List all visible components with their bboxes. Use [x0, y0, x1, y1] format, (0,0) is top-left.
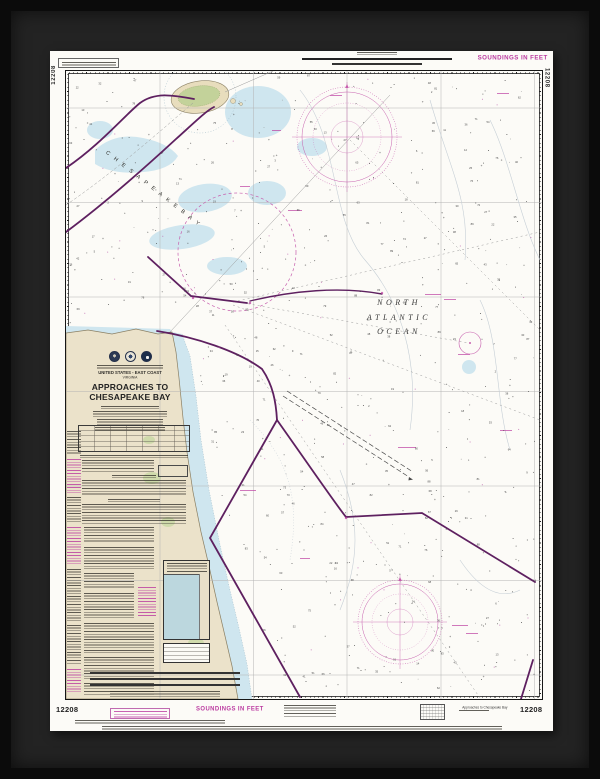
- svg-text:68: 68: [428, 580, 431, 584]
- svg-text:27: 27: [484, 210, 487, 214]
- svg-text:19: 19: [213, 200, 216, 204]
- svg-text:55: 55: [310, 120, 313, 124]
- note-heading: [108, 499, 160, 502]
- chart-paper: 3723897533631141732827589193127943474751…: [50, 51, 553, 731]
- svg-text:81: 81: [477, 477, 480, 481]
- svg-text:83: 83: [245, 546, 248, 550]
- svg-text:82: 82: [333, 372, 336, 376]
- svg-text:27: 27: [344, 138, 347, 142]
- svg-text:30: 30: [456, 204, 459, 208]
- scale-bar-main: [302, 58, 452, 60]
- svg-text:31: 31: [128, 280, 131, 284]
- note-paragraph: [84, 593, 134, 619]
- soundings-note-top: SOUNDINGS IN FEET: [478, 55, 548, 61]
- svg-text:30: 30: [521, 333, 524, 337]
- svg-text:26: 26: [211, 160, 214, 164]
- svg-text:34: 34: [210, 349, 213, 353]
- svg-text:76: 76: [69, 263, 72, 267]
- note-paragraph: [110, 691, 220, 697]
- svg-text:11: 11: [261, 447, 264, 451]
- svg-text:70: 70: [256, 418, 259, 422]
- svg-text:37: 37: [209, 309, 212, 313]
- svg-text:9: 9: [526, 470, 528, 474]
- corrections-note: [75, 720, 225, 725]
- inset-table-box: [163, 643, 210, 663]
- page: { "chart": { "number": "12208", "soundin…: [0, 0, 600, 779]
- svg-text:21: 21: [242, 483, 245, 487]
- margin-note: [67, 497, 81, 523]
- chart-title-line2: CHESAPEAKE BAY: [70, 393, 190, 403]
- svg-text:66: 66: [322, 672, 325, 676]
- svg-text:18: 18: [405, 198, 408, 202]
- svg-text:59: 59: [305, 184, 308, 188]
- svg-text:7: 7: [234, 209, 236, 213]
- margin-note: [67, 569, 81, 621]
- svg-text:52: 52: [293, 625, 296, 629]
- svg-text:31: 31: [211, 440, 214, 444]
- svg-text:87: 87: [526, 337, 529, 341]
- svg-text:83: 83: [441, 652, 444, 656]
- svg-text:11: 11: [212, 313, 215, 317]
- svg-text:78: 78: [141, 295, 144, 299]
- land-scale-bars: [90, 671, 240, 688]
- depth-contours: [250, 90, 540, 610]
- scale-bar: [90, 672, 240, 674]
- svg-text:36: 36: [465, 123, 468, 127]
- svg-text:66: 66: [432, 129, 435, 133]
- svg-text:52: 52: [236, 353, 239, 357]
- svg-text:62: 62: [273, 347, 276, 351]
- margin-note-magenta: [67, 459, 81, 493]
- svg-text:89: 89: [245, 308, 248, 312]
- svg-text:43: 43: [484, 262, 487, 266]
- svg-text:50: 50: [230, 282, 233, 286]
- svg-text:63: 63: [69, 141, 72, 145]
- svg-text:63: 63: [357, 201, 360, 205]
- margin-note-magenta: [67, 527, 81, 565]
- inset-map-shore: [199, 574, 209, 639]
- chart-id-text: [62, 62, 116, 66]
- svg-text:19: 19: [391, 387, 394, 391]
- svg-text:87: 87: [307, 74, 310, 78]
- svg-text:54: 54: [183, 293, 186, 297]
- commerce-seal-icon: [109, 351, 120, 362]
- svg-text:22: 22: [329, 561, 332, 565]
- svg-text:88: 88: [428, 480, 431, 484]
- svg-text:62: 62: [518, 96, 521, 100]
- svg-text:62: 62: [437, 686, 440, 690]
- scale-bar-sub: [332, 63, 422, 65]
- svg-text:89: 89: [471, 222, 474, 226]
- svg-text:26: 26: [324, 234, 327, 238]
- svg-text:31: 31: [465, 516, 468, 520]
- svg-text:63: 63: [279, 571, 282, 575]
- svg-text:25: 25: [469, 166, 472, 170]
- svg-text:28: 28: [196, 304, 199, 308]
- svg-text:21: 21: [327, 423, 330, 427]
- svg-text:37: 37: [347, 645, 350, 649]
- svg-text:5: 5: [431, 458, 433, 462]
- authority-note-line: [102, 726, 502, 731]
- svg-text:68: 68: [351, 578, 354, 582]
- svg-text:16: 16: [187, 230, 190, 234]
- svg-text:35: 35: [375, 670, 378, 674]
- svg-text:54: 54: [300, 470, 303, 474]
- svg-text:77: 77: [381, 242, 384, 246]
- svg-text:5: 5: [389, 569, 391, 573]
- svg-text:26: 26: [263, 628, 266, 632]
- svg-text:88: 88: [477, 543, 480, 547]
- svg-text:35: 35: [514, 215, 517, 219]
- svg-text:46: 46: [292, 502, 295, 506]
- note-caption: [80, 455, 188, 458]
- corrections-grid-box: [420, 704, 445, 720]
- svg-text:43: 43: [454, 660, 457, 664]
- scale-bar: [90, 684, 240, 686]
- svg-text:57: 57: [281, 511, 284, 515]
- svg-text:65: 65: [355, 161, 358, 165]
- note-paragraph: [82, 480, 186, 496]
- svg-text:18: 18: [461, 409, 464, 413]
- svg-text:40: 40: [515, 160, 518, 164]
- svg-text:77: 77: [514, 356, 517, 360]
- svg-text:76: 76: [470, 179, 473, 183]
- svg-text:6: 6: [416, 149, 418, 153]
- margin-note: [67, 625, 81, 665]
- svg-text:35: 35: [385, 469, 388, 473]
- svg-text:38: 38: [497, 277, 500, 281]
- svg-text:69: 69: [77, 307, 80, 311]
- note-paragraph: [84, 527, 154, 543]
- svg-text:53: 53: [489, 421, 492, 425]
- svg-text:89: 89: [390, 249, 393, 253]
- svg-text:85: 85: [214, 430, 217, 434]
- svg-text:54: 54: [487, 120, 490, 124]
- svg-text:80: 80: [415, 446, 418, 450]
- logo-box-small: [158, 465, 188, 477]
- inset-map-header-text: [167, 563, 207, 572]
- ocean-label-line3: OCEAN: [350, 325, 448, 340]
- svg-text:6: 6: [358, 137, 360, 141]
- survey-seal-icon: [125, 351, 136, 362]
- svg-text:27: 27: [486, 616, 489, 620]
- svg-text:68: 68: [429, 489, 432, 493]
- svg-text:61: 61: [186, 289, 189, 293]
- dredged-channel: [283, 391, 413, 480]
- svg-text:74: 74: [403, 237, 406, 241]
- svg-text:15: 15: [256, 349, 259, 353]
- svg-text:9: 9: [142, 199, 144, 203]
- chart-number-right-vertical: 12208: [544, 68, 550, 88]
- note-paragraph: [84, 623, 154, 653]
- svg-text:70: 70: [287, 493, 290, 497]
- svg-text:71: 71: [179, 177, 182, 181]
- svg-text:67: 67: [428, 510, 431, 514]
- svg-text:36: 36: [222, 379, 225, 383]
- margin-note: [67, 431, 81, 455]
- svg-text:22: 22: [491, 223, 494, 227]
- note-paragraph: [82, 504, 186, 524]
- svg-text:3: 3: [274, 159, 276, 163]
- svg-text:46: 46: [320, 421, 323, 425]
- svg-text:79: 79: [318, 391, 321, 395]
- noaa-logo-icon: [141, 351, 152, 362]
- svg-text:38: 38: [453, 230, 456, 234]
- svg-text:3: 3: [449, 645, 451, 649]
- svg-text:38: 38: [505, 391, 508, 395]
- chart-number-bottom-right: 12208: [520, 705, 542, 714]
- footer-title-sub: [459, 710, 489, 711]
- svg-text:14: 14: [416, 662, 419, 666]
- svg-text:43: 43: [529, 320, 532, 324]
- top-scale-bar: [302, 52, 452, 68]
- svg-text:83: 83: [377, 288, 380, 292]
- ocean-label-line2: ATLANTIC: [350, 311, 448, 326]
- scale-bar: [90, 678, 240, 680]
- svg-text:47: 47: [352, 482, 355, 486]
- svg-text:4: 4: [470, 588, 472, 592]
- svg-text:22: 22: [292, 286, 295, 290]
- svg-text:52: 52: [244, 290, 247, 294]
- inset-map-header: [164, 561, 209, 575]
- svg-text:9: 9: [292, 349, 294, 353]
- svg-text:48: 48: [254, 336, 257, 340]
- note-paragraph: [84, 573, 134, 589]
- svg-text:78: 78: [132, 102, 135, 106]
- svg-text:36: 36: [437, 618, 440, 622]
- svg-text:75: 75: [213, 121, 216, 125]
- svg-text:82: 82: [370, 493, 373, 497]
- svg-text:14: 14: [533, 578, 536, 582]
- note-paragraph-magenta: [138, 587, 156, 617]
- svg-text:71: 71: [300, 352, 303, 356]
- caution-box-magenta: [110, 708, 170, 719]
- svg-text:19: 19: [249, 364, 252, 368]
- svg-text:13: 13: [176, 181, 179, 185]
- ocean-name-label: NORTH ATLANTIC OCEAN: [350, 296, 448, 340]
- footer-title-text: Approaches to Chesapeake Bay: [462, 706, 485, 709]
- svg-text:12: 12: [464, 148, 467, 152]
- svg-text:46: 46: [271, 363, 274, 367]
- svg-text:65: 65: [455, 262, 458, 266]
- svg-text:51: 51: [393, 657, 396, 661]
- chart-id-box: [58, 58, 119, 68]
- title-country: UNITED STATES - EAST COAST: [94, 371, 166, 375]
- svg-text:42: 42: [76, 256, 79, 260]
- svg-text:23: 23: [241, 430, 244, 434]
- svg-text:5: 5: [264, 245, 266, 249]
- svg-text:5: 5: [94, 249, 96, 253]
- svg-text:81: 81: [366, 221, 369, 225]
- svg-text:58: 58: [321, 455, 324, 459]
- scale-caption: [357, 52, 397, 55]
- svg-text:50: 50: [231, 309, 234, 313]
- note-heading: [112, 475, 156, 478]
- svg-text:32: 32: [98, 81, 101, 85]
- svg-text:6: 6: [495, 601, 497, 605]
- svg-text:71: 71: [263, 397, 266, 401]
- svg-text:16: 16: [334, 567, 337, 571]
- svg-text:54: 54: [264, 555, 267, 559]
- svg-text:76: 76: [424, 548, 427, 552]
- svg-text:27: 27: [163, 273, 166, 277]
- svg-text:51: 51: [386, 541, 389, 545]
- svg-text:40: 40: [257, 379, 260, 383]
- tide-table: [78, 425, 190, 452]
- agency-caption: [97, 365, 163, 369]
- svg-text:13: 13: [496, 653, 499, 657]
- svg-text:75: 75: [308, 609, 311, 613]
- footer-title: Approaches to Chesapeake Bay: [448, 706, 500, 713]
- svg-text:79: 79: [323, 304, 326, 308]
- svg-text:72: 72: [477, 203, 480, 207]
- chart-title-block: UNITED STATES - EAST COAST VIRGINIA APPR…: [70, 348, 190, 433]
- title-state: VIRGINIA: [101, 376, 159, 379]
- svg-text:32: 32: [283, 673, 286, 677]
- svg-text:63: 63: [335, 561, 338, 565]
- svg-text:54: 54: [244, 493, 247, 497]
- svg-text:2: 2: [495, 370, 497, 374]
- agency-logos: [70, 351, 190, 363]
- soundings-note-bottom: SOUNDINGS IN FEET: [196, 706, 264, 712]
- inset-map-box: [163, 560, 210, 640]
- svg-text:62: 62: [388, 424, 391, 428]
- svg-text:41: 41: [303, 675, 306, 679]
- svg-text:55: 55: [343, 213, 346, 217]
- note-paragraph: [82, 460, 154, 472]
- compass-rose-south: [353, 575, 447, 669]
- racon-circle: [459, 332, 481, 354]
- svg-text:13: 13: [81, 108, 84, 112]
- ocean-label-line1: NORTH: [350, 296, 448, 311]
- svg-text:81: 81: [416, 181, 419, 185]
- svg-text:71: 71: [398, 545, 401, 549]
- svg-text:71: 71: [357, 666, 360, 670]
- svg-text:56: 56: [425, 469, 428, 473]
- margin-note-magenta: [67, 669, 81, 693]
- svg-text:64: 64: [508, 448, 511, 452]
- svg-text:48: 48: [428, 81, 431, 85]
- svg-text:41: 41: [89, 122, 92, 126]
- svg-text:60: 60: [314, 127, 317, 131]
- svg-text:80: 80: [431, 648, 434, 652]
- svg-text:11: 11: [443, 128, 446, 132]
- svg-text:60: 60: [266, 514, 269, 518]
- svg-text:27: 27: [77, 204, 80, 208]
- svg-text:22: 22: [76, 86, 79, 90]
- svg-text:81: 81: [434, 87, 437, 91]
- svg-text:82: 82: [425, 516, 428, 520]
- chart-number-left-vertical: 12208: [51, 65, 57, 85]
- chart-number-bottom-left: 12208: [56, 705, 78, 714]
- svg-text:13: 13: [324, 131, 327, 135]
- svg-text:45: 45: [432, 121, 435, 125]
- svg-text:26: 26: [455, 509, 458, 513]
- svg-text:24: 24: [412, 599, 415, 603]
- svg-text:2: 2: [431, 90, 433, 94]
- svg-text:27: 27: [424, 236, 427, 240]
- note-paragraph: [84, 547, 154, 569]
- svg-text:23: 23: [453, 337, 456, 341]
- projection-note: [101, 406, 159, 409]
- svg-text:66: 66: [297, 208, 300, 212]
- caution-box-text: [114, 711, 167, 718]
- svg-text:71: 71: [475, 117, 478, 121]
- svg-text:73: 73: [283, 486, 286, 490]
- svg-text:59: 59: [277, 75, 280, 79]
- svg-text:51: 51: [312, 671, 315, 675]
- svg-text:84: 84: [321, 522, 324, 526]
- svg-text:7: 7: [411, 171, 413, 175]
- svg-text:17: 17: [92, 235, 95, 239]
- publisher-note: [284, 705, 336, 717]
- svg-text:2: 2: [368, 404, 370, 408]
- svg-text:19: 19: [225, 373, 228, 377]
- picture-frame: 3723897533631141732827589193127943474751…: [0, 0, 600, 779]
- svg-text:27: 27: [267, 165, 270, 169]
- svg-text:76: 76: [495, 156, 498, 160]
- scale-note: [93, 411, 167, 417]
- svg-text:52: 52: [330, 333, 333, 337]
- svg-text:7: 7: [493, 342, 495, 346]
